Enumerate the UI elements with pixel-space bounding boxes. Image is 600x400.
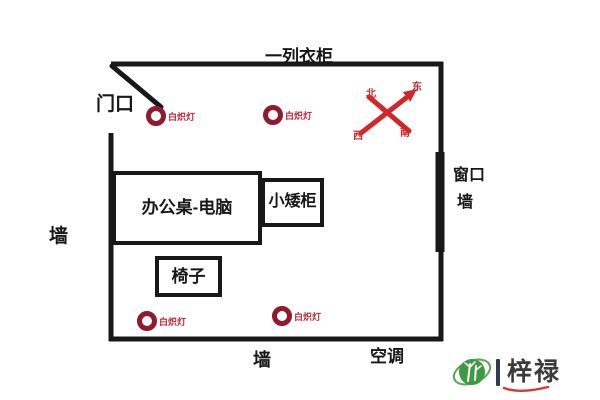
lamp-icon <box>272 306 292 326</box>
compass-west-label: 西 <box>353 127 363 142</box>
lamp-icon <box>263 105 283 125</box>
chair-label: 椅子 <box>172 268 206 286</box>
cabinet-box: 小矮柜 <box>261 178 324 227</box>
watermark-red-swoosh <box>502 384 552 394</box>
lamp-top-left: 白炽灯 <box>146 106 195 126</box>
lamp-label: 白炽灯 <box>294 310 321 323</box>
watermark-separator <box>496 359 500 386</box>
watermark-globe-icon <box>452 352 492 392</box>
desk-box: 办公桌-电脑 <box>112 171 262 245</box>
lamp-top-center: 白炽灯 <box>263 105 312 125</box>
desk-label: 办公桌-电脑 <box>142 199 233 217</box>
ac-label: 空调 <box>370 342 404 367</box>
lamp-icon <box>146 106 166 126</box>
lamp-label: 白炽灯 <box>168 110 195 123</box>
door-label: 门口 <box>96 89 134 116</box>
wardrobe-label: 一列衣柜 <box>265 42 333 67</box>
bottom-wall-label: 墙 <box>253 346 271 372</box>
lamp-bottom-center: 白炽灯 <box>272 306 321 326</box>
compass-north-label: 北 <box>366 85 376 100</box>
cabinet-label: 小矮柜 <box>268 194 316 211</box>
left-wall-label: 墙 <box>49 221 68 248</box>
lamp-label: 白炽灯 <box>159 315 186 328</box>
compass-east-label: 东 <box>412 78 422 93</box>
compass-south-label: 南 <box>400 124 410 139</box>
lamp-label: 白炽灯 <box>285 109 312 122</box>
chair-box: 椅子 <box>155 256 222 297</box>
window-label: 窗口 <box>453 161 485 185</box>
lamp-bottom-left: 白炽灯 <box>137 311 186 331</box>
watermark-brand-text: 梓禄 <box>507 360 561 385</box>
watermark: 梓禄 <box>452 352 561 392</box>
window-wall-label: 墙 <box>457 188 473 212</box>
lamp-icon <box>137 311 157 331</box>
